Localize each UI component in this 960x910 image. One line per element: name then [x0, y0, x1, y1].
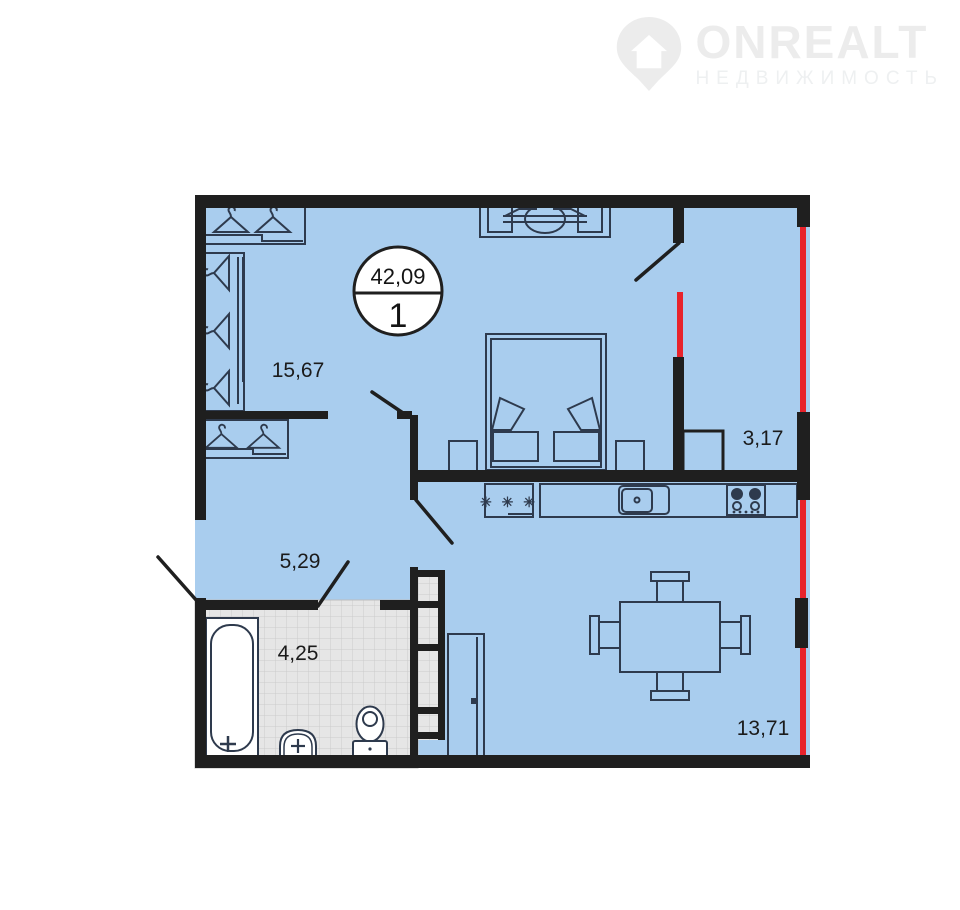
washbasin: [280, 730, 316, 756]
wall-top: [195, 195, 810, 208]
floorplan-drawing: ✳ ✳ ✳: [0, 0, 960, 910]
window-loggia: [800, 227, 806, 412]
area-label-bedroom: 15,67: [272, 359, 325, 382]
dining-table: [620, 602, 720, 672]
bathtub: [206, 618, 258, 758]
area-label-bathroom: 4,25: [278, 642, 319, 665]
chair-bottom: [651, 691, 689, 700]
area-label-loggia: 3,17: [743, 427, 784, 450]
wall-left-lower: [195, 598, 206, 768]
window-kitchen-lower: [800, 648, 806, 755]
wall-right-pier: [795, 598, 808, 648]
wall-right-bottom: [797, 755, 810, 768]
wardrobe-hallway: [198, 420, 288, 458]
area-label-hallway: 5,29: [280, 550, 321, 573]
nightstand-right: [616, 441, 644, 471]
wall-right-mid: [797, 412, 810, 500]
door-entrance: [158, 557, 197, 601]
vent-box: [683, 431, 723, 472]
brand-name: ONREALT: [695, 19, 928, 65]
unit-badge: 42,09 1: [354, 247, 442, 335]
total-area-label: 42,09: [370, 264, 425, 289]
glazed-partition: [677, 292, 683, 357]
window-kitchen-upper: [800, 500, 806, 598]
toilet: [353, 707, 387, 758]
unit-number-label: 1: [389, 297, 408, 335]
wall-right-top: [797, 195, 810, 227]
brand-subtitle: НЕДВИЖИМОСТЬ: [695, 68, 944, 90]
area-label-kitchen-living: 13,71: [737, 717, 790, 740]
fridge-freezer-symbol: ✳ ✳ ✳: [480, 494, 538, 510]
wall-bottom: [195, 755, 810, 768]
onrealt-logo: ONREALT НЕДВИЖИМОСТЬ: [613, 14, 944, 94]
floorplan-page: ONREALT НЕДВИЖИМОСТЬ: [0, 0, 960, 910]
chair-left: [590, 616, 599, 654]
chair-top: [651, 572, 689, 581]
double-bed: [486, 334, 606, 470]
map-pin-house-icon: [613, 14, 685, 94]
chair-right: [741, 616, 750, 654]
wall-left-upper: [195, 195, 206, 520]
tall-cabinet: [448, 634, 484, 764]
nightstand-left: [449, 441, 477, 471]
